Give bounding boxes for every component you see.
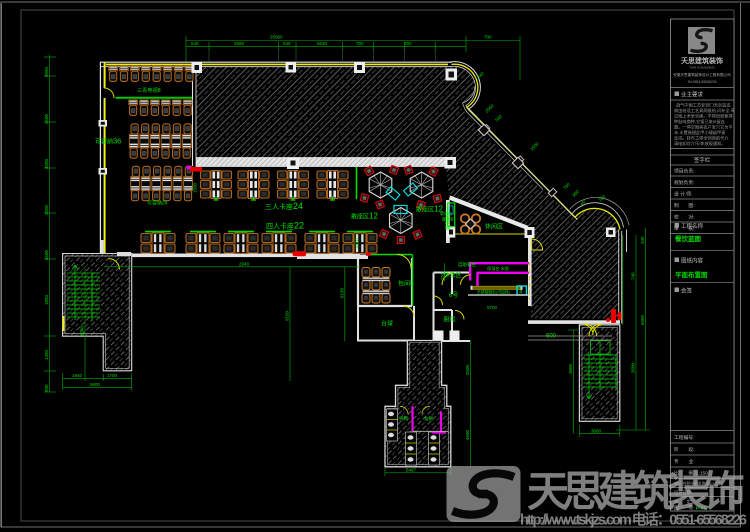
- svg-text:消: 消: [519, 288, 523, 294]
- svg-text:3600: 3600: [568, 363, 573, 374]
- svg-text:http://www.tskjzs.com 电话：0551-: http://www.tskjzs.com 电话：0551-65568226: [520, 511, 747, 529]
- svg-text:Tel:0551-65568226: Tel:0551-65568226: [687, 80, 716, 84]
- svg-text:5600: 5600: [90, 382, 101, 387]
- svg-text:天思建筑装饰: 天思建筑装饰: [681, 56, 723, 65]
- svg-text:4500: 4500: [44, 204, 49, 215]
- svg-text:4600: 4600: [465, 429, 470, 440]
- svg-text:项目负责:: 项目负责:: [674, 168, 695, 175]
- svg-text:2560: 2560: [234, 41, 245, 46]
- svg-text:阶 段:: 阶 段:: [674, 446, 695, 453]
- svg-text:6130: 6130: [339, 287, 344, 298]
- svg-text:340: 340: [640, 236, 645, 244]
- svg-text:5467: 5467: [406, 468, 417, 473]
- svg-text:540: 540: [191, 41, 199, 46]
- svg-text:台球: 台球: [381, 320, 393, 328]
- svg-text:4500: 4500: [355, 237, 360, 248]
- svg-text:3500: 3500: [465, 364, 470, 375]
- svg-text:工程名称: 工程名称: [681, 222, 704, 230]
- svg-text:图纸内容: 图纸内容: [681, 257, 704, 265]
- svg-text:9150: 9150: [285, 310, 290, 321]
- svg-text:三青电视8: 三青电视8: [137, 86, 161, 94]
- svg-text:4500: 4500: [44, 158, 49, 169]
- svg-text:1350: 1350: [44, 349, 49, 360]
- svg-text:6560: 6560: [80, 325, 85, 336]
- svg-text:700: 700: [484, 35, 492, 40]
- svg-text:25060: 25060: [270, 35, 283, 40]
- svg-text:1500: 1500: [193, 182, 198, 193]
- svg-text:请咱如饮介乐/休放规通知。: 请咱如饮介乐/休放规通知。: [674, 140, 725, 147]
- svg-text:3600: 3600: [631, 362, 636, 373]
- svg-text:700: 700: [404, 41, 412, 46]
- svg-text:4500: 4500: [44, 113, 49, 124]
- svg-text:签字栏: 签字栏: [694, 156, 711, 164]
- svg-text:可容纳24: 可容纳24: [147, 200, 168, 207]
- svg-text:规划负责:: 规划负责:: [674, 179, 695, 186]
- svg-text:自助餐台: 自助餐台: [458, 261, 476, 268]
- svg-text:天思建筑装饰: 天思建筑装饰: [527, 468, 745, 515]
- svg-text:TIAN SI BUILDING: TIAN SI BUILDING: [689, 66, 715, 70]
- svg-text:740: 740: [631, 272, 636, 280]
- svg-text:厨房: 厨房: [444, 316, 456, 324]
- svg-text:900: 900: [44, 384, 49, 392]
- svg-text:2940: 2940: [239, 262, 250, 267]
- svg-text:平面布置图: 平面布置图: [675, 270, 708, 279]
- svg-text:休闲区: 休闲区: [485, 223, 503, 231]
- svg-text:工程编号:: 工程编号:: [674, 434, 695, 441]
- svg-text:6500: 6500: [640, 314, 645, 325]
- svg-text:600: 600: [546, 334, 557, 340]
- svg-text:540: 540: [283, 41, 291, 46]
- svg-text:校 对:: 校 对:: [674, 214, 695, 221]
- svg-text:餐饮蓝图: 餐饮蓝图: [674, 234, 702, 243]
- svg-text:专 业:: 专 业:: [674, 458, 695, 465]
- svg-text:1700: 1700: [107, 373, 118, 378]
- svg-text:1850: 1850: [44, 294, 49, 305]
- svg-text:包间5: 包间5: [398, 280, 414, 288]
- svg-text:会签: 会签: [681, 287, 693, 295]
- svg-text:3990: 3990: [44, 66, 49, 77]
- svg-text:不锈钢餐台(可加热): 不锈钢餐台(可加热): [477, 289, 511, 294]
- svg-text:3000: 3000: [591, 429, 602, 434]
- svg-text:业主要求: 业主要求: [681, 91, 704, 99]
- svg-text:1840: 1840: [72, 373, 83, 378]
- svg-text:休息区: 休息区: [444, 271, 462, 279]
- svg-text:4500: 4500: [44, 249, 49, 260]
- svg-text:服务台: 服务台: [445, 215, 452, 230]
- svg-text:保温台 米饭: 保温台 米饭: [487, 265, 510, 272]
- svg-text:女厕: 女厕: [424, 415, 433, 422]
- svg-text:5630: 5630: [317, 41, 328, 46]
- svg-text:设 计 师:: 设 计 师:: [674, 191, 692, 198]
- svg-text:6号: 6号: [449, 292, 458, 299]
- svg-text:制 图:: 制 图:: [674, 202, 695, 209]
- svg-text:700: 700: [356, 41, 364, 46]
- svg-text:安徽天思建筑装饰设计工程有限公司: 安徽天思建筑装饰设计工程有限公司: [673, 72, 731, 77]
- svg-text:5700: 5700: [487, 305, 498, 310]
